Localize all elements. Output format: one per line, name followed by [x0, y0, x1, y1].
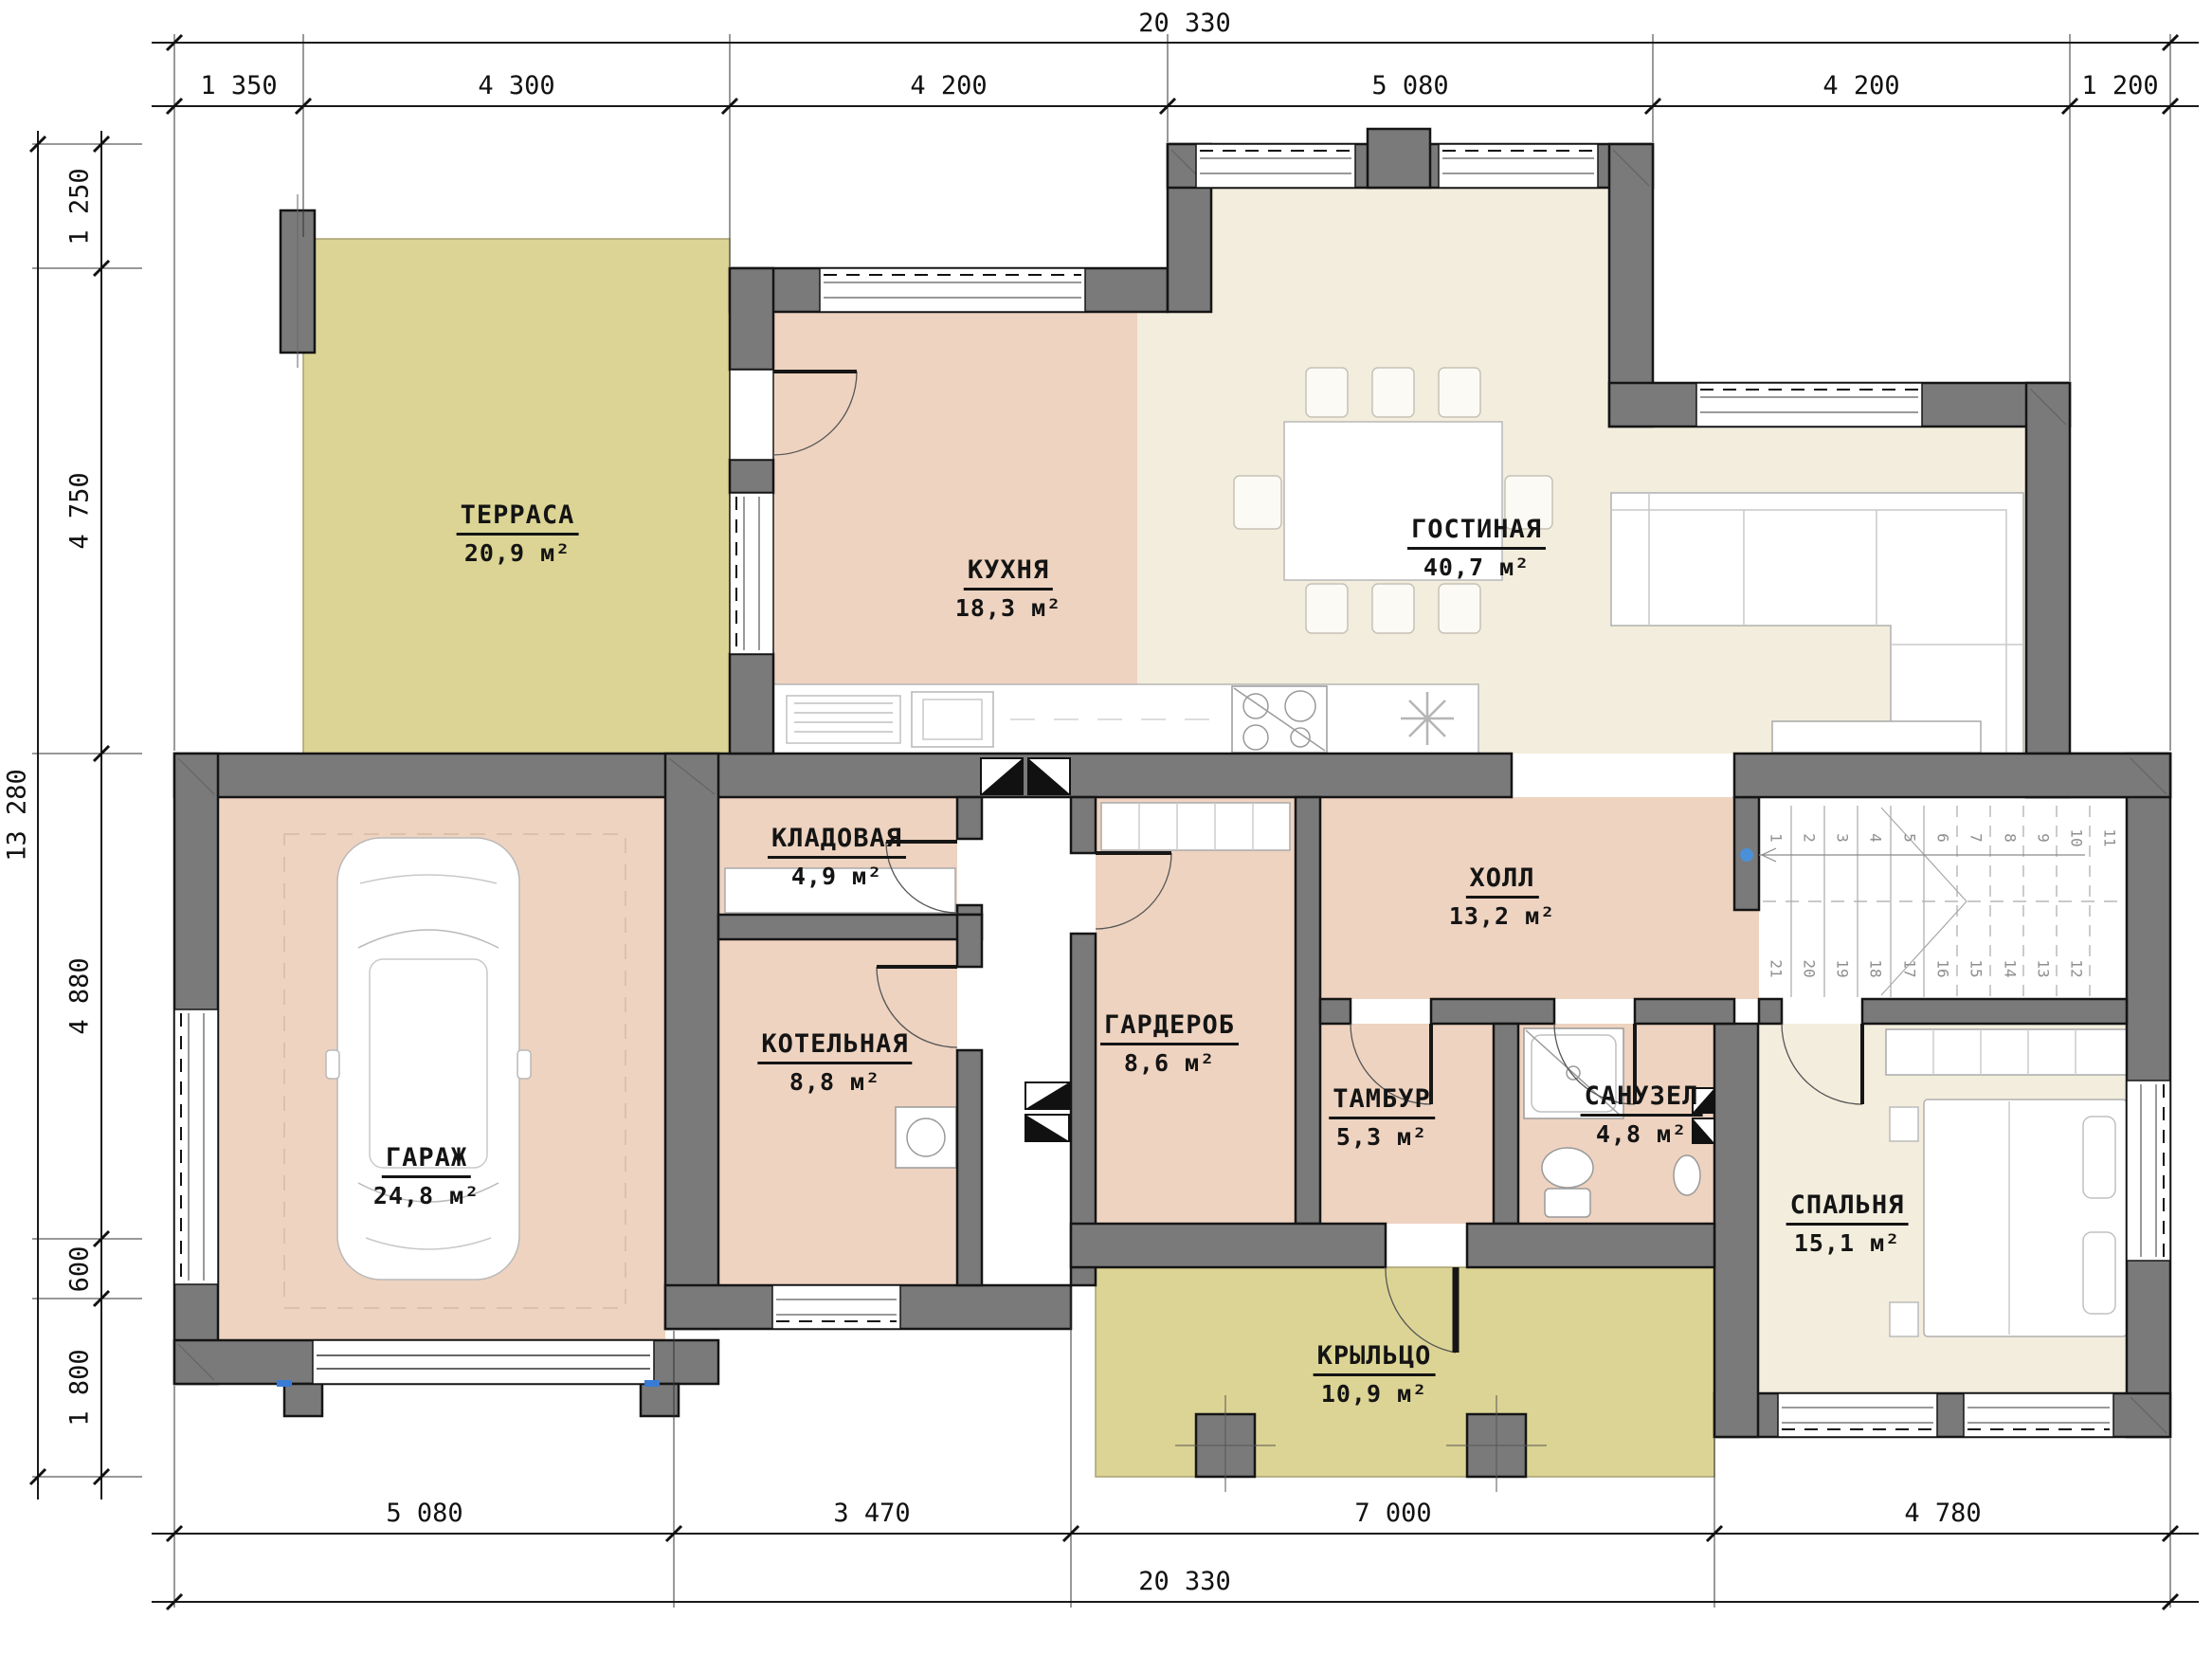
level-marker	[277, 1380, 292, 1387]
wall	[957, 905, 982, 915]
wall	[665, 754, 718, 1329]
kitchen-counter	[773, 684, 1478, 754]
stair-step-number: 17	[1900, 959, 1918, 977]
wall	[1714, 1024, 1758, 1437]
window	[1196, 144, 1355, 188]
level-marker	[644, 1380, 660, 1387]
stair-step-number: 11	[2101, 828, 2119, 846]
stair-step-number: 3	[1834, 833, 1852, 843]
stair-step-number: 18	[1867, 959, 1885, 977]
stair-step-number: 16	[1934, 959, 1952, 977]
tv-cabinet	[1772, 721, 1981, 753]
room-name: САНУЗЕЛ	[1581, 1081, 1703, 1117]
door-opening	[730, 370, 773, 460]
stair-step-number: 20	[1800, 959, 1818, 977]
room-area: 5,3 м²	[1329, 1123, 1435, 1151]
wall	[174, 754, 1512, 797]
window	[820, 268, 1085, 312]
window	[1964, 1393, 2113, 1437]
boiler-equipment	[896, 1107, 956, 1168]
dim-left-total: 13 280	[3, 769, 32, 862]
stair-step-number: 8	[2001, 833, 2019, 843]
wall	[1467, 1224, 1714, 1267]
stair-step-number: 21	[1767, 959, 1785, 977]
room-area: 18,3 м²	[955, 594, 1061, 622]
car	[326, 838, 531, 1280]
dim-left-seg: 4 750	[65, 472, 95, 549]
dim-left-seg: 600	[65, 1246, 95, 1293]
toilet	[1542, 1148, 1593, 1217]
room-label-garage: ГАРАЖ 24,8 м²	[373, 1143, 480, 1209]
wall	[957, 797, 982, 839]
window	[1778, 1393, 1937, 1437]
window	[1439, 144, 1598, 188]
room-area: 8,8 м²	[757, 1068, 912, 1096]
wall	[1320, 999, 1351, 1024]
wall	[284, 1384, 322, 1416]
room-area: 10,9 м²	[1314, 1380, 1436, 1408]
dim-top-seg: 4 200	[910, 71, 987, 100]
wall	[1759, 999, 1782, 1024]
stair-step-number: 7	[1967, 833, 1985, 843]
wall	[641, 1384, 679, 1416]
bedroom-closet	[1886, 1029, 2127, 1075]
window	[1696, 383, 1922, 427]
wall	[1071, 797, 1096, 853]
room-label-bathroom: САНУЗЕЛ 4,8 м²	[1581, 1081, 1703, 1148]
stair-step-number: 10	[2068, 828, 2086, 846]
wall	[957, 1050, 982, 1285]
room-area: 4,9 м²	[768, 863, 906, 890]
room-label-kitchen: КУХНЯ 18,3 м²	[955, 555, 1061, 622]
room-label-vestibule: ТАМБУР 5,3 м²	[1329, 1084, 1435, 1151]
dim-top-seg: 4 200	[1822, 71, 1899, 100]
room-area: 20,9 м²	[457, 539, 579, 567]
dim-bottom-seg: 7 000	[1354, 1499, 1431, 1528]
floor-plan-page: ТЕРРАСА 20,9 м² КУХНЯ 18,3 м² ГОСТИНАЯ 4…	[0, 0, 2212, 1672]
window	[730, 493, 773, 654]
stair-step-number: 19	[1834, 959, 1852, 977]
room-name: КРЫЛЬЦО	[1314, 1341, 1436, 1376]
room-name: СПАЛЬНЯ	[1786, 1190, 1909, 1226]
wall	[1296, 797, 1320, 1224]
dim-bottom-seg: 5 080	[386, 1499, 462, 1528]
bed	[1890, 1100, 2127, 1336]
window	[772, 1285, 900, 1329]
wall	[1734, 754, 2170, 797]
wall	[957, 915, 982, 967]
room-label-porch: КРЫЛЬЦО 10,9 м²	[1314, 1341, 1436, 1408]
wardrobe-closet	[1101, 803, 1290, 850]
stair-step-number: 2	[1800, 833, 1818, 843]
chimney	[1368, 129, 1430, 188]
room-name: ГОСТИНАЯ	[1407, 515, 1546, 550]
wall	[730, 460, 773, 493]
window	[2127, 1081, 2170, 1261]
dim-top-seg: 1 200	[2081, 71, 2158, 100]
stair-step-number: 15	[1967, 959, 1985, 977]
stair-step-number: 1	[1767, 833, 1785, 843]
room-name: КОТЕЛЬНАЯ	[757, 1029, 912, 1064]
wall	[718, 915, 982, 939]
wall	[1862, 999, 2127, 1024]
wall	[1431, 999, 1554, 1024]
room-name: ТАМБУР	[1329, 1084, 1435, 1119]
room-area: 40,7 м²	[1407, 554, 1546, 581]
dim-bottom-seg: 4 780	[1904, 1499, 1981, 1528]
room-name: ГАРАЖ	[382, 1143, 471, 1178]
room-name: ХОЛЛ	[1465, 863, 1538, 899]
room-name: КЛАДОВАЯ	[768, 824, 906, 859]
wall	[1071, 1224, 1386, 1267]
corridor-floor	[982, 797, 1071, 1285]
wall	[730, 654, 773, 754]
stair-step-number: 4	[1867, 833, 1885, 843]
stair-step-number: 6	[1934, 833, 1952, 843]
dim-top-seg: 4 300	[478, 71, 554, 100]
dim-bottom-seg: 3 470	[833, 1499, 910, 1528]
room-area: 8,6 м²	[1100, 1049, 1239, 1077]
room-name: ТЕРРАСА	[457, 500, 579, 536]
stair-step-number: 13	[2034, 959, 2052, 977]
room-name: КУХНЯ	[964, 555, 1053, 591]
garage-gate	[313, 1340, 654, 1384]
room-area: 4,8 м²	[1581, 1120, 1703, 1148]
stair-start-marker	[1740, 848, 1753, 862]
room-label-living: ГОСТИНАЯ 40,7 м²	[1407, 515, 1546, 581]
stair-step-number: 14	[2001, 959, 2019, 977]
dim-bottom-total: 20 330	[1138, 1567, 1231, 1596]
room-area: 13,2 м²	[1449, 902, 1555, 930]
stair-step-number: 12	[2068, 959, 2086, 977]
dim-left-seg: 1 250	[65, 168, 95, 245]
wall	[1635, 999, 1734, 1024]
stair-step-number: 9	[2034, 833, 2052, 843]
dim-left-seg: 4 880	[65, 957, 95, 1034]
stair-step-number: 5	[1900, 833, 1918, 843]
wall	[1494, 1024, 1518, 1224]
dim-left-seg: 1 800	[65, 1349, 95, 1426]
washbasin	[1674, 1155, 1700, 1195]
room-area: 15,1 м²	[1786, 1229, 1909, 1257]
garage-side-gate	[174, 1009, 218, 1284]
dim-top-seg: 1 350	[200, 71, 277, 100]
room-name: ГАРДЕРОБ	[1100, 1010, 1239, 1045]
room-label-wardrobe: ГАРДЕРОБ 8,6 м²	[1100, 1010, 1239, 1077]
dim-top-total: 20 330	[1138, 9, 1231, 38]
dim-top-seg: 5 080	[1371, 71, 1448, 100]
room-area: 24,8 м²	[373, 1182, 480, 1209]
wall	[2026, 383, 2070, 797]
room-label-boiler: КОТЕЛЬНАЯ 8,8 м²	[757, 1029, 912, 1096]
room-label-hall: ХОЛЛ 13,2 м²	[1449, 863, 1555, 930]
terrace-floor	[303, 239, 730, 754]
room-label-pantry: КЛАДОВАЯ 4,9 м²	[768, 824, 906, 890]
room-label-terrace: ТЕРРАСА 20,9 м²	[457, 500, 579, 567]
room-label-bedroom: СПАЛЬНЯ 15,1 м²	[1786, 1190, 1909, 1257]
wall	[730, 268, 773, 370]
